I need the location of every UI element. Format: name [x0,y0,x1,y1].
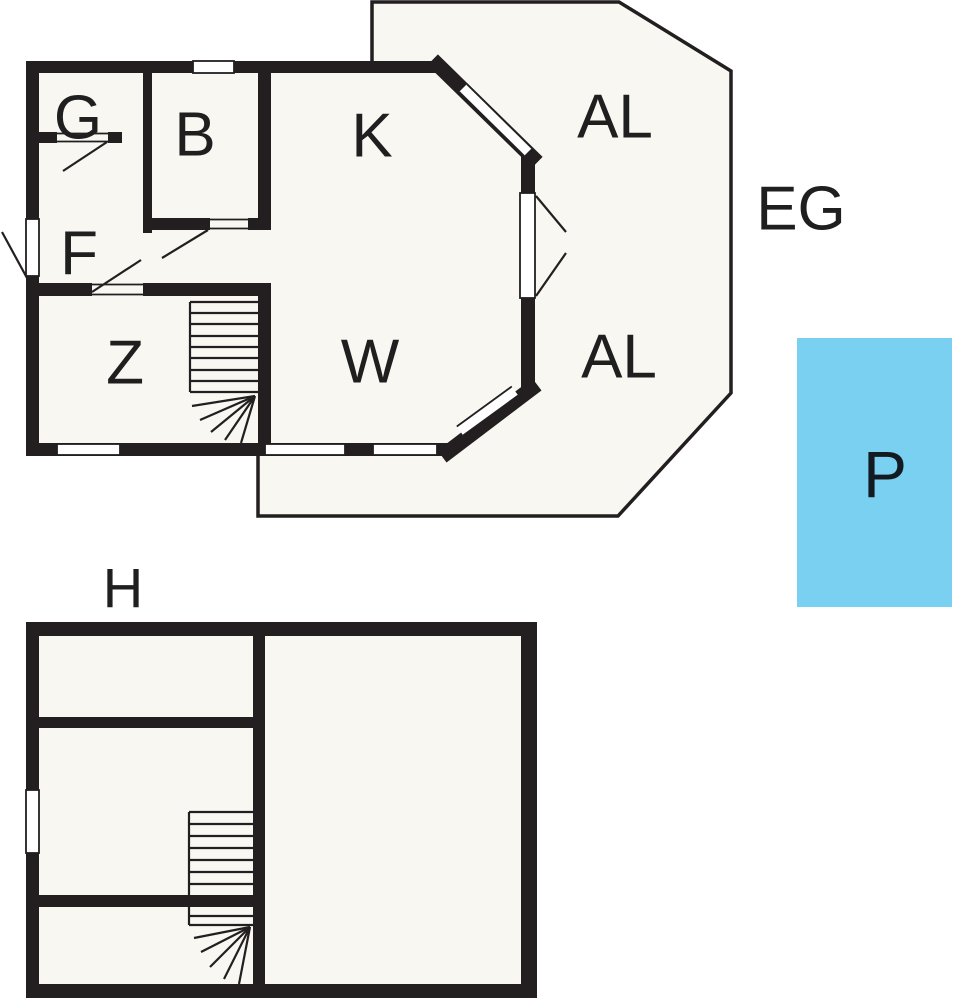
upper-floor-plan: G B K F Z W AL AL EG [2,2,846,516]
floor-plan-svg: G B K F Z W AL AL EG P [0,0,954,1000]
window-bottom-w2 [373,444,437,455]
room-label-g: G [54,84,102,153]
room-label-b: B [174,101,215,170]
room-label-f: F [60,220,98,289]
floor-label-h: H [103,557,143,620]
entrance-door-opening [26,219,39,276]
floor-plan-page: G B K F Z W AL AL EG P [0,0,954,1000]
terrace-label-lower: AL [581,323,657,392]
room-label-w: W [341,328,400,397]
floor-label-eg: EG [756,175,846,244]
pool-label: P [863,437,907,511]
window-bottom-z [57,444,120,455]
terrace-door-opening [520,193,535,298]
room-label-z: Z [106,329,144,398]
room-label-k: K [351,102,392,171]
lower-window-left [26,790,39,853]
lower-floor-area [26,622,537,998]
terrace-label-upper: AL [577,83,653,152]
window-bottom-w1 [265,444,345,455]
lower-floor-plan: H [26,557,537,999]
house-floor [26,61,535,456]
window-top [193,61,234,73]
pool-area: P [797,338,952,607]
